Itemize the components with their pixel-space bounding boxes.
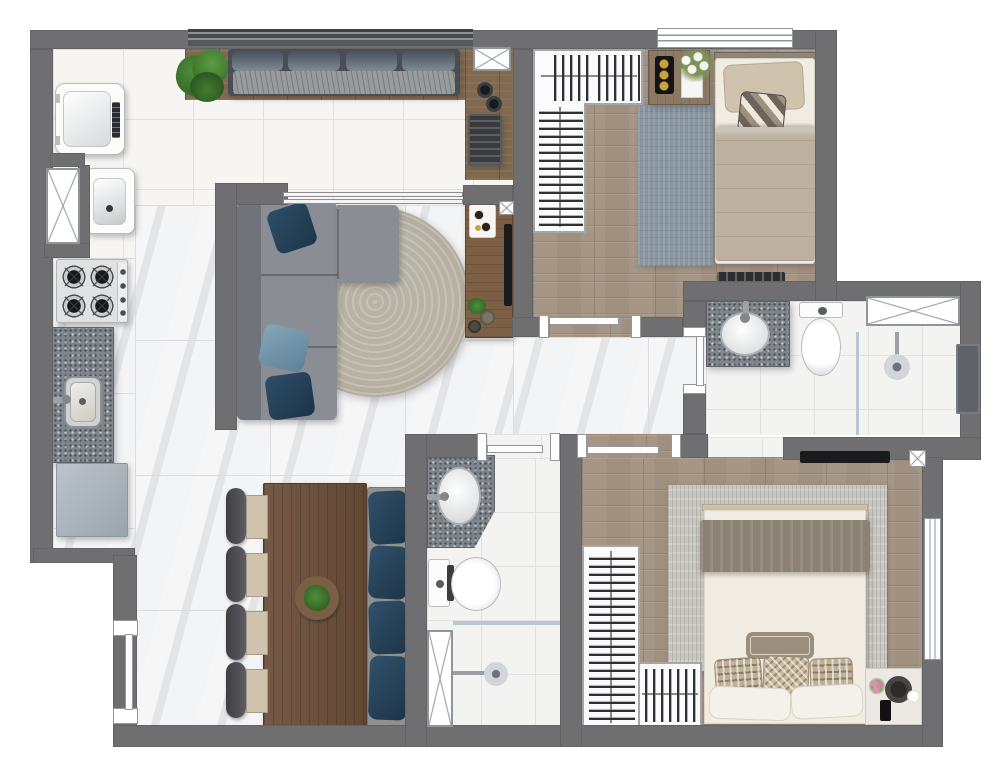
coffee-cup (474, 210, 484, 220)
bench-seat (233, 71, 455, 94)
dining-chair (226, 662, 246, 718)
suite-towel-bar (956, 344, 980, 414)
social-bath-door-jamb (550, 433, 560, 461)
washer-hinge (56, 136, 60, 145)
nightstand-cup (907, 690, 920, 703)
living-sofa-chaise (337, 205, 399, 283)
nightstand-flowers (674, 46, 714, 82)
nightstand-flowers (868, 677, 886, 695)
dining-chair (226, 488, 246, 544)
kitchen-sink-drain (79, 398, 86, 405)
stove-knob-strip (117, 263, 127, 321)
bedroom2-white-pillow (790, 683, 864, 720)
floor-hall (513, 337, 706, 434)
suite-shower-head (884, 354, 910, 380)
bench-cushion (346, 51, 397, 71)
centerpiece-plant (304, 585, 330, 611)
washing-machine (55, 83, 125, 155)
window-x-icon laundry-window (46, 168, 80, 244)
bedroom2-blanket-taupe (700, 520, 870, 572)
suite-toilet-tank (799, 302, 843, 318)
dining-chair-seat (246, 553, 268, 597)
kitchen-lower-cabinet (56, 463, 128, 537)
kitchen-faucet-base (62, 395, 71, 404)
round-decor (468, 320, 481, 333)
bedroom2-nightstand (865, 668, 922, 725)
hanging-clothes (539, 109, 583, 226)
wall-bottom (113, 725, 943, 747)
wall-left (30, 49, 53, 563)
sofa-pillow-navy (264, 371, 316, 421)
sofa-seam (261, 274, 337, 276)
social-bath-door-jamb (477, 433, 487, 461)
dining-chair-seat (246, 669, 268, 713)
balcony-glass-railing (188, 29, 473, 46)
burner-icon (89, 264, 115, 290)
laundry-sink-basin (93, 178, 126, 225)
window-x-icon balcony-window (473, 47, 511, 71)
social-shower-head (484, 662, 508, 686)
bedroom2-door-jamb (577, 434, 587, 458)
sofa-seam (337, 209, 339, 279)
washer-lid (63, 91, 111, 147)
bedroom2-white-pillow (708, 686, 791, 722)
laundry-sink (85, 168, 135, 234)
bench-pillow-navy (368, 655, 409, 720)
bedroom1-rug (638, 104, 713, 266)
bedroom1-blanket (716, 127, 815, 261)
console-plant-decor (466, 298, 498, 338)
washer-control-panel (112, 102, 120, 138)
suite-shower-glass (856, 332, 859, 435)
wall-dining-living-divider (215, 183, 237, 430)
table-centerpiece-plate (295, 576, 339, 620)
coffee-tray (469, 204, 496, 238)
bedroom1-closet-top (533, 49, 643, 105)
hanging-clothes (645, 669, 697, 722)
laundry-sink-drain (106, 205, 113, 212)
coffee-cup (481, 222, 491, 232)
dining-chair-seat (246, 495, 268, 539)
cooktop-stove (56, 259, 128, 323)
social-faucet-base (440, 492, 449, 501)
social-bath-door-leaf (487, 445, 543, 453)
hanging-clothes (589, 554, 635, 720)
bench-cushion (232, 51, 283, 71)
window-x-icon social-bathroom-window (427, 630, 453, 727)
bedroom2-closet-vertical (582, 545, 640, 727)
bench-pillow-navy (368, 490, 410, 545)
bedroom2-closet-horizontal (640, 662, 702, 727)
bedroom1-closet-left (533, 103, 586, 233)
floor-bedroom1-nook (533, 281, 683, 317)
shaft-icon living-shaft (499, 201, 514, 215)
bedroom2-tv (800, 451, 890, 463)
bedroom2-window (924, 518, 941, 660)
bench-pillow-navy (368, 600, 409, 654)
shaft-icon bedroom2-shaft (909, 450, 926, 467)
bedroom1-door-leaf (549, 317, 619, 325)
balcony-bench-sofa (228, 49, 460, 96)
balcony-plant (176, 50, 230, 104)
entry-door-jamb (113, 708, 138, 724)
flush-button (818, 307, 827, 315)
nightstand-remote (880, 700, 891, 721)
entry-door-leaf (125, 634, 133, 710)
suite-bath-door-leaf (696, 336, 704, 386)
suite-toilet-bowl (801, 318, 841, 376)
gold-dot (475, 225, 481, 231)
burner-icon (61, 264, 87, 290)
wall-bedroom1-right (815, 30, 837, 301)
round-decor (480, 310, 495, 325)
washer-hinge (56, 94, 60, 103)
suite-faucet-base (740, 313, 750, 323)
bench-cushion (402, 51, 455, 71)
plant-leaves (190, 72, 224, 102)
dining-chair (226, 604, 246, 660)
social-toilet-bowl (451, 557, 501, 611)
bedroom1-door-jamb (539, 315, 549, 338)
bedroom1-door-jamb (631, 315, 641, 338)
balcony-sliding-door-rail (283, 192, 463, 197)
nightstand-lamp-tray (655, 56, 674, 94)
burner-icon (61, 293, 87, 319)
wall-social-left (405, 434, 427, 747)
wall-laundry-stub-b (44, 243, 90, 258)
hanging-clothes (554, 55, 594, 101)
floor-plan (0, 0, 1000, 777)
social-shower-glass (453, 621, 560, 625)
burner-icon (89, 293, 115, 319)
wall-social-bedroom2-divider (560, 434, 582, 747)
balcony-grill (468, 114, 502, 166)
dining-chair (226, 546, 246, 602)
hanging-clothes (598, 55, 640, 101)
tv-screen (504, 224, 512, 306)
window-x-icon suite-bathroom-window (866, 296, 960, 326)
dining-chair-seat (246, 611, 268, 655)
bench-cushion (288, 51, 340, 71)
bedroom1-window (657, 28, 793, 48)
bench-pillow-navy (368, 545, 410, 600)
bedroom2-door-jamb (671, 434, 681, 458)
wall-bedroom1-left (513, 49, 533, 337)
bedroom2-door-leaf (587, 446, 659, 454)
wall-laundry-stub-a (50, 153, 85, 167)
balcony-sliding-door-rail (283, 199, 463, 204)
sofa-back-strip (237, 202, 261, 420)
balcony-bowl (486, 96, 502, 112)
flush-button (436, 580, 444, 588)
